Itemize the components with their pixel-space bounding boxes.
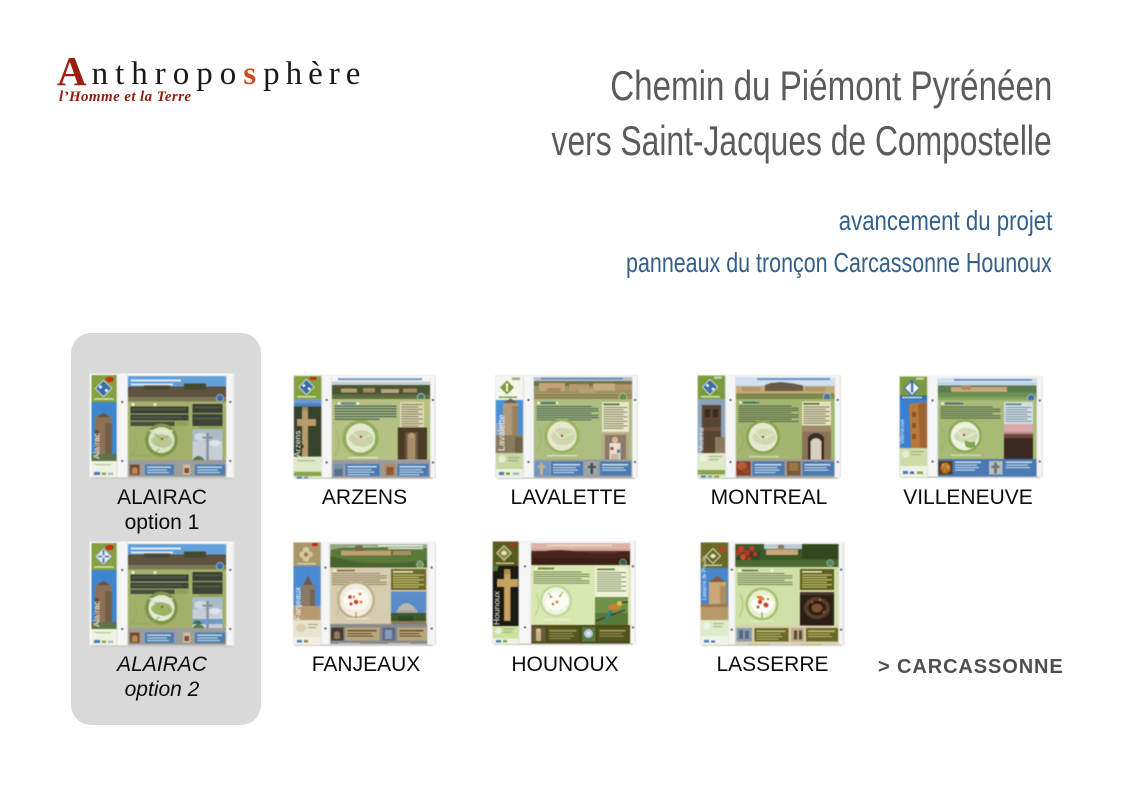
svg-text:Lavalette: Lavalette bbox=[497, 414, 507, 451]
svg-text:Hounoux: Hounoux bbox=[492, 590, 502, 625]
svg-text:Arzens: Arzens bbox=[293, 431, 303, 457]
svg-text:Villeneuve: Villeneuve bbox=[900, 419, 906, 444]
svg-text:Alairac: Alairac bbox=[92, 600, 102, 627]
svg-text:Montréal: Montréal bbox=[700, 428, 706, 451]
svg-text:Alairac: Alairac bbox=[92, 432, 102, 459]
svg-text:Lasserre de Prouille: Lasserre de Prouille bbox=[702, 555, 708, 600]
svg-text:Fanjeaux: Fanjeaux bbox=[294, 587, 303, 620]
